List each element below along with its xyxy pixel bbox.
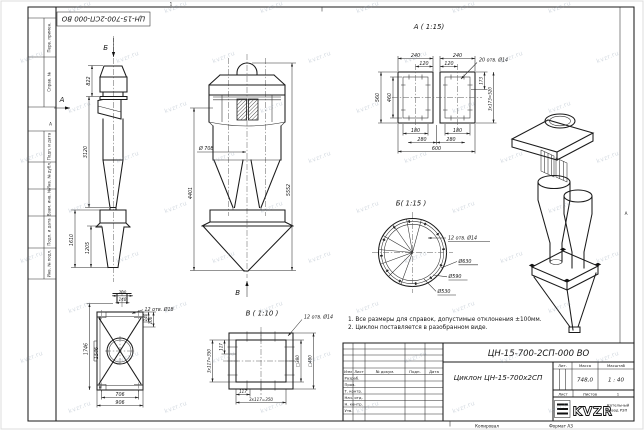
footer-copy-label: Копировал xyxy=(475,424,499,429)
dim-630: Ø630 xyxy=(458,258,472,265)
iso-right-cyclone-shoulder xyxy=(564,190,592,202)
scale-label: Масштаб xyxy=(607,363,626,368)
drawing-sheet: Перв. примен. Справ. № Подп. и дата Инв.… xyxy=(0,0,644,430)
section-a-view: А ( 1:15) 240 240 120 120 20 отв. Ø14 56… xyxy=(375,23,508,154)
section-v-view: В ( 1:10 ) 12 отв. Ø14 117 3х117=350 □38… xyxy=(207,310,334,405)
view-arrow-b-label: Б xyxy=(103,44,108,52)
margin-field-perv: Перв. примен. xyxy=(47,22,52,52)
margin-field-inv-podl: Инв. № подл. xyxy=(47,250,52,278)
dim-240-left: 240 xyxy=(411,53,420,59)
margin-field-podp2: Подп. и дата xyxy=(47,218,52,246)
section-a-holes-note: 20 отв. Ø14 xyxy=(479,57,508,64)
zone-mark-right: А xyxy=(625,211,628,216)
section-b-holes-note: 12 отв. Ø14 xyxy=(448,235,477,242)
dim-708: Ø 708 xyxy=(198,145,213,152)
iso-left-cyclone-stub xyxy=(550,260,562,265)
outlet-pipe-section-left xyxy=(237,99,247,120)
row-tkontr: Т. контр. xyxy=(344,389,363,394)
margin-field-inv-dubl: Инв. № дубл. xyxy=(47,162,52,189)
dim-120-left: 120 xyxy=(419,61,428,67)
dim-280-left: 280 xyxy=(417,137,426,143)
front-centerlines xyxy=(229,54,266,278)
dim-5552: 5552 xyxy=(286,184,292,196)
col-data: Дата xyxy=(429,369,439,374)
note-1: 1. Все размеры для справок, допустимые о… xyxy=(348,317,542,323)
sheets-value: 1 xyxy=(617,392,620,397)
dim-180-left: 180 xyxy=(411,128,420,134)
margin-field-sprav: Справ. № xyxy=(47,72,52,91)
note-2: 2. Циклон поставляется в разобранном вид… xyxy=(348,325,488,331)
dim-4401: 4401 xyxy=(188,187,194,199)
col-podp: Подп. xyxy=(409,369,421,374)
side-view: Б А 822 3120 1610 1205 xyxy=(54,36,130,282)
row-nachotd: Нач. отд. xyxy=(345,395,363,400)
dim-1746: 1746 xyxy=(84,343,90,355)
dim-117-bottom: 117 xyxy=(239,389,247,394)
footer-format-label: Формат А3 xyxy=(549,424,573,429)
dim-pitch-bottom: 3х117=350 xyxy=(249,397,273,402)
section-v-title: В ( 1:10 ) xyxy=(246,310,279,318)
company-line2: завод РЗП xyxy=(607,408,627,413)
view-arrow-a-label: А xyxy=(59,96,65,104)
margin-field-lines xyxy=(28,7,450,427)
drawing-svg: Перв. примен. Справ. № Подп. и дата Инв.… xyxy=(0,0,644,430)
dim-100: 100 xyxy=(148,316,153,324)
dim-pitch-left: 3х117=350 xyxy=(207,349,212,373)
dim-140-top: 140 xyxy=(119,297,127,302)
dim-590-leader xyxy=(433,275,447,277)
dim-560: 560 xyxy=(375,93,381,102)
notes: 1. Все размеры для справок, допустимые о… xyxy=(348,317,542,331)
dim-1205: 1205 xyxy=(85,242,91,254)
dim-120-right: 120 xyxy=(444,61,453,67)
zone-mark-left: А xyxy=(49,122,52,127)
dim-200: 200 xyxy=(119,290,127,295)
row-nkontr: Н. контр. xyxy=(345,402,363,407)
mass-value: 748,0 xyxy=(577,378,593,384)
front-ext-lines xyxy=(190,63,296,271)
dim-173: 173 xyxy=(479,77,484,85)
sheet-label: Лист xyxy=(558,392,568,397)
dim-460: 460 xyxy=(387,93,393,102)
col-doc: № докум. xyxy=(376,369,395,374)
row-utv: Утв. xyxy=(345,408,353,413)
iso-top-slab xyxy=(512,120,593,160)
section-b-view: Б( 1:15 ) 12 отв. Ø14 Ø630 Ø590 Ø530 xyxy=(372,200,490,296)
support-view: 200 140 12 отв. Ø18 140 100 1746 1546 70… xyxy=(84,290,174,408)
doc-name: Циклон ЦН-15-700х2СП xyxy=(454,373,543,382)
dim-3120: 3120 xyxy=(83,146,89,158)
logo-bars-icon xyxy=(557,405,568,414)
dim-600: 600 xyxy=(432,146,441,152)
iso-hopper xyxy=(534,273,596,333)
view-arrow-v-label: В xyxy=(235,289,240,297)
row-razrab: Разраб. xyxy=(345,376,360,381)
doc-number: ЦН-15-700-2СП-000 ВО xyxy=(488,349,590,359)
dim-240-right: 240 xyxy=(453,53,462,59)
dim-pitch-520: 3х173=520 xyxy=(488,87,493,111)
col-izm: Изм xyxy=(344,369,352,374)
front-view: В Ø 708 4401 5552 xyxy=(188,54,296,297)
mass-label: Масса xyxy=(579,363,591,368)
top-stamp-number: ЦН-15-700-2СП-000 ВО xyxy=(61,15,145,23)
dim-906: 906 xyxy=(115,400,124,406)
section-a-ext-lines xyxy=(378,56,497,154)
section-b-spokes xyxy=(379,220,421,285)
title-block: ЦН-15-700-2СП-000 ВО Изм Лист № докум. П… xyxy=(343,343,634,421)
col-list: Лист xyxy=(354,369,364,374)
row-prov: Пров. xyxy=(345,382,356,387)
dim-1546: 1546 xyxy=(94,347,100,359)
dim-630-leader xyxy=(441,262,457,269)
company-logo: KVZR Котельный завод РЗП xyxy=(555,401,630,419)
section-v-holes-note: 12 отв. Ø14 xyxy=(304,314,333,321)
section-v-ext-lines xyxy=(210,333,317,405)
section-b-title: Б( 1:15 ) xyxy=(396,200,427,208)
margin-field-vzam: Взам. инв. № xyxy=(47,189,52,216)
iso-bottom-plate xyxy=(532,251,598,290)
dim-280-right: 280 xyxy=(446,137,455,143)
isometric-view xyxy=(512,114,601,333)
section-a-centerlines xyxy=(392,64,482,131)
iso-corner-feet xyxy=(529,248,601,282)
dim-590: Ø590 xyxy=(448,273,462,280)
dim-706: 706 xyxy=(115,392,124,398)
iso-outlet-louvers xyxy=(541,150,567,182)
front-contour xyxy=(202,63,293,271)
dim-530-leader xyxy=(424,279,436,291)
dim-117-left: 117 xyxy=(219,343,224,351)
outlet-pipe-section-right xyxy=(249,99,259,120)
side-contour xyxy=(96,66,130,268)
dim-822: 822 xyxy=(86,76,92,85)
dim-180-right: 180 xyxy=(453,128,462,134)
section-a-title: А ( 1:15) xyxy=(413,23,445,31)
scale-value: 1 : 40 xyxy=(608,378,625,384)
lit-label: Лит. xyxy=(558,363,567,368)
side-inlet-scroll xyxy=(98,106,121,112)
dim-380: □380 xyxy=(295,355,300,367)
margin-field-podp1: Подп. и дата xyxy=(47,132,52,160)
iso-left-cyclone-shoulder xyxy=(538,176,570,189)
sheets-label: Листов xyxy=(583,392,598,397)
zone-mark-top: 1 xyxy=(170,2,173,7)
dim-1610: 1610 xyxy=(69,234,75,246)
dim-480: □480 xyxy=(308,355,313,367)
dim-530: Ø530 xyxy=(437,288,451,295)
